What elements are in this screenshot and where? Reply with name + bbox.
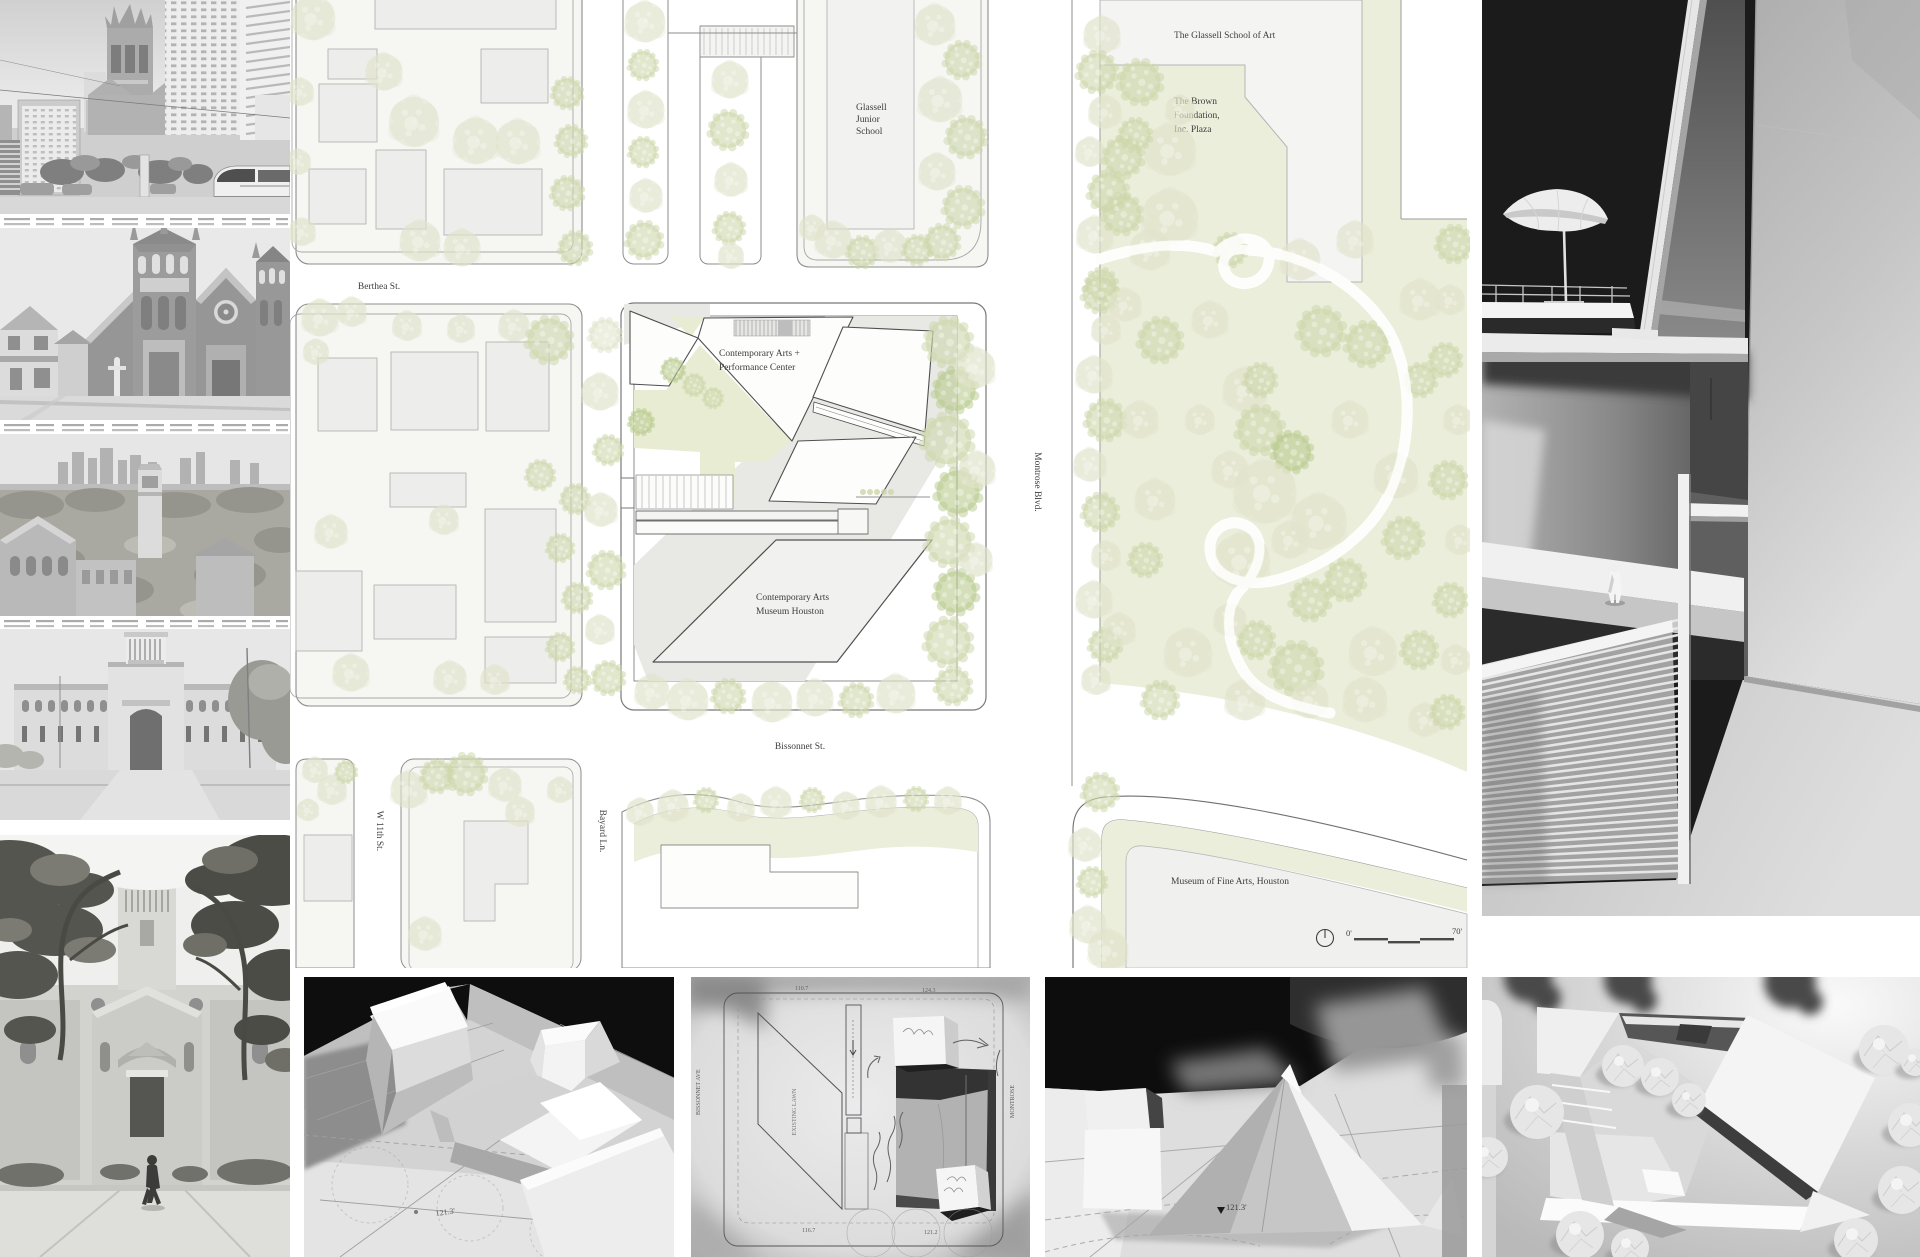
svg-text:EXISTING LAWN: EXISTING LAWN <box>792 1088 798 1135</box>
svg-text:Museum of Fine Arts, Houston: Museum of Fine Arts, Houston <box>1171 876 1289 887</box>
svg-text:Junior: Junior <box>856 115 881 125</box>
svg-text:Museum Houston: Museum Houston <box>756 607 824 617</box>
svg-text:Berthea St.: Berthea St. <box>358 282 400 292</box>
svg-text:116.7: 116.7 <box>802 1228 815 1234</box>
svg-text:70': 70' <box>1452 926 1463 936</box>
svg-text:124.3: 124.3 <box>922 988 936 994</box>
svg-text:110.7: 110.7 <box>795 986 808 992</box>
svg-text:Bissonnet St.: Bissonnet St. <box>775 742 825 752</box>
svg-text:Contemporary Arts: Contemporary Arts <box>756 593 829 603</box>
svg-text:Bayard Ln.: Bayard Ln. <box>597 810 607 853</box>
svg-text:Glassell: Glassell <box>856 103 887 113</box>
svg-text:Performance Center: Performance Center <box>719 362 796 373</box>
svg-text:MONTROSE: MONTROSE <box>1010 1085 1016 1118</box>
svg-text:W 11th St.: W 11th St. <box>374 811 384 851</box>
svg-text:Montrose Blvd.: Montrose Blvd. <box>1032 452 1042 512</box>
svg-text:121.2: 121.2 <box>924 1230 938 1236</box>
svg-text:BISSONNET AVE: BISSONNET AVE <box>696 1069 702 1115</box>
svg-text:Contemporary Arts +: Contemporary Arts + <box>719 349 800 359</box>
svg-text:The Glassell School of Art: The Glassell School of Art <box>1174 30 1276 41</box>
svg-text:121.3': 121.3' <box>1226 1202 1247 1212</box>
svg-text:0': 0' <box>1346 928 1352 938</box>
svg-text:School: School <box>856 127 883 137</box>
